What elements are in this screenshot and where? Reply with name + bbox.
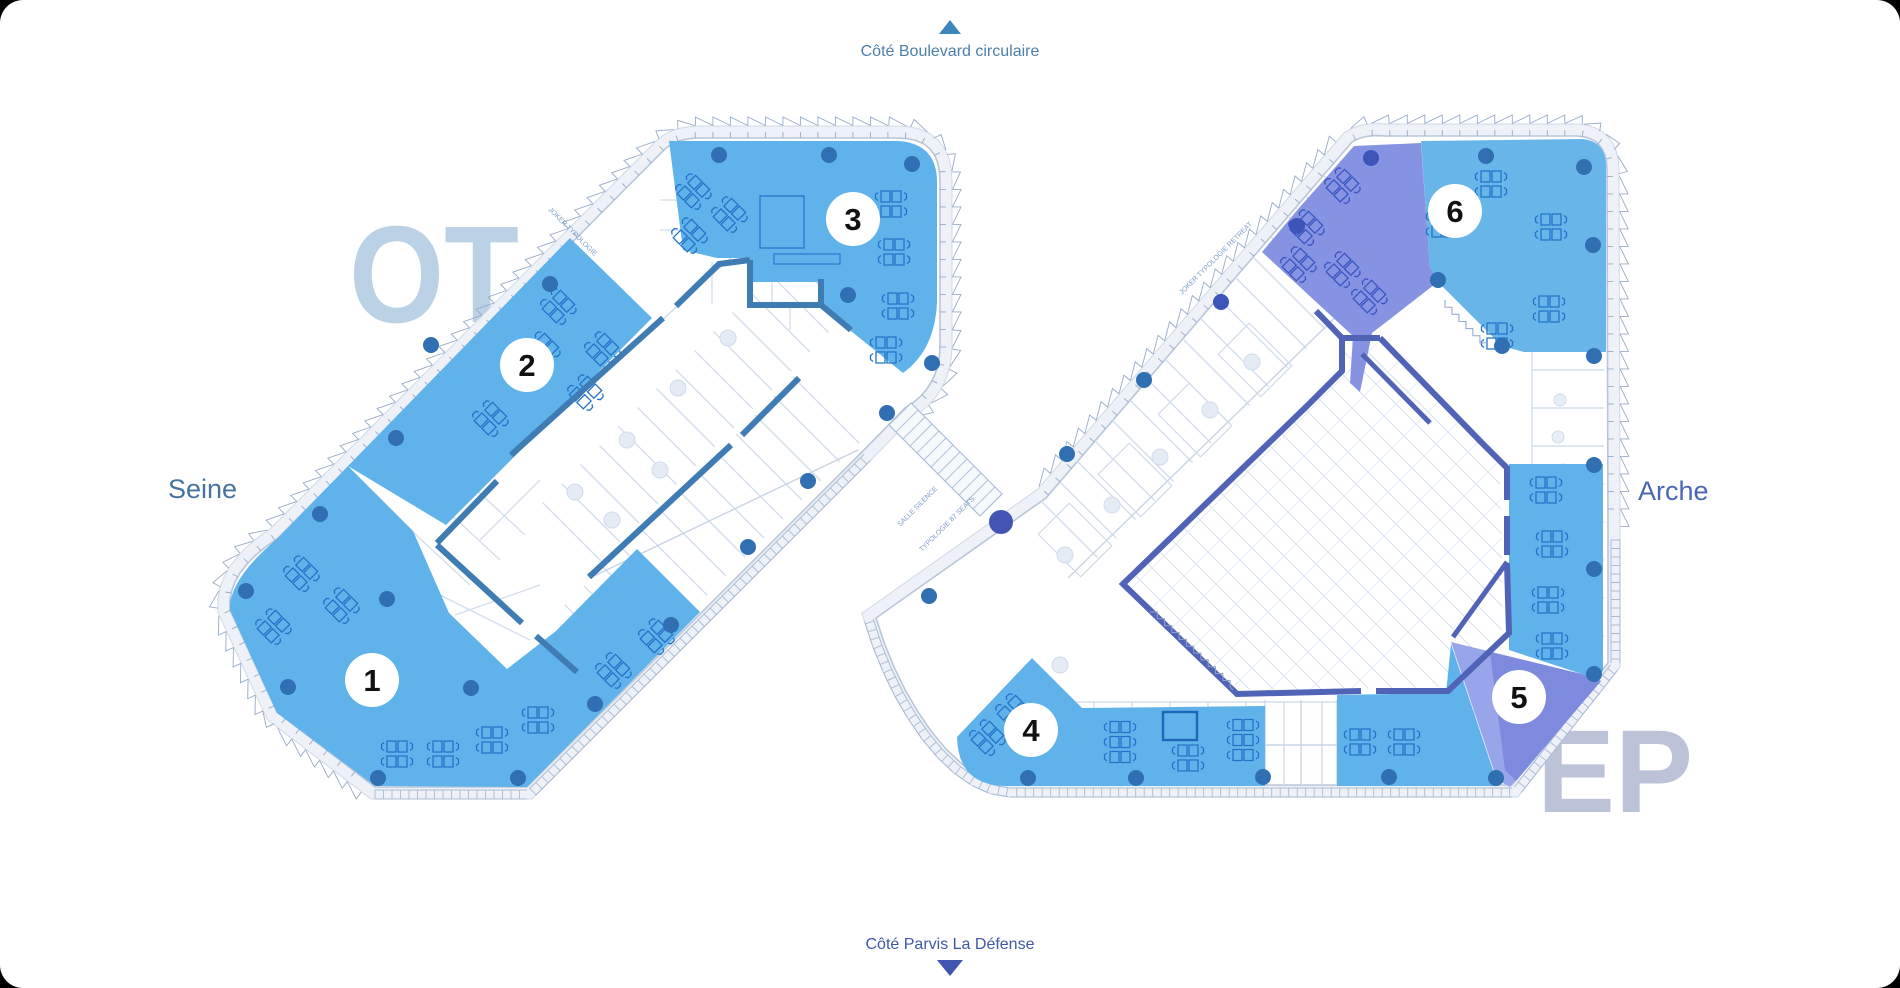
svg-text:3: 3 bbox=[844, 202, 861, 237]
svg-text:4: 4 bbox=[1022, 713, 1040, 748]
svg-text:Arche: Arche bbox=[1638, 476, 1709, 506]
svg-text:Côté Boulevard circulaire: Côté Boulevard circulaire bbox=[861, 43, 1040, 60]
svg-text:6: 6 bbox=[1446, 194, 1463, 229]
svg-text:1: 1 bbox=[363, 663, 380, 698]
svg-text:5: 5 bbox=[1510, 680, 1527, 715]
svg-text:2: 2 bbox=[518, 348, 535, 383]
svg-text:Seine: Seine bbox=[168, 474, 237, 504]
svg-text:Côté Parvis La Défense: Côté Parvis La Défense bbox=[866, 936, 1035, 953]
svg-text:SALLE SILENCE: SALLE SILENCE bbox=[896, 485, 939, 528]
